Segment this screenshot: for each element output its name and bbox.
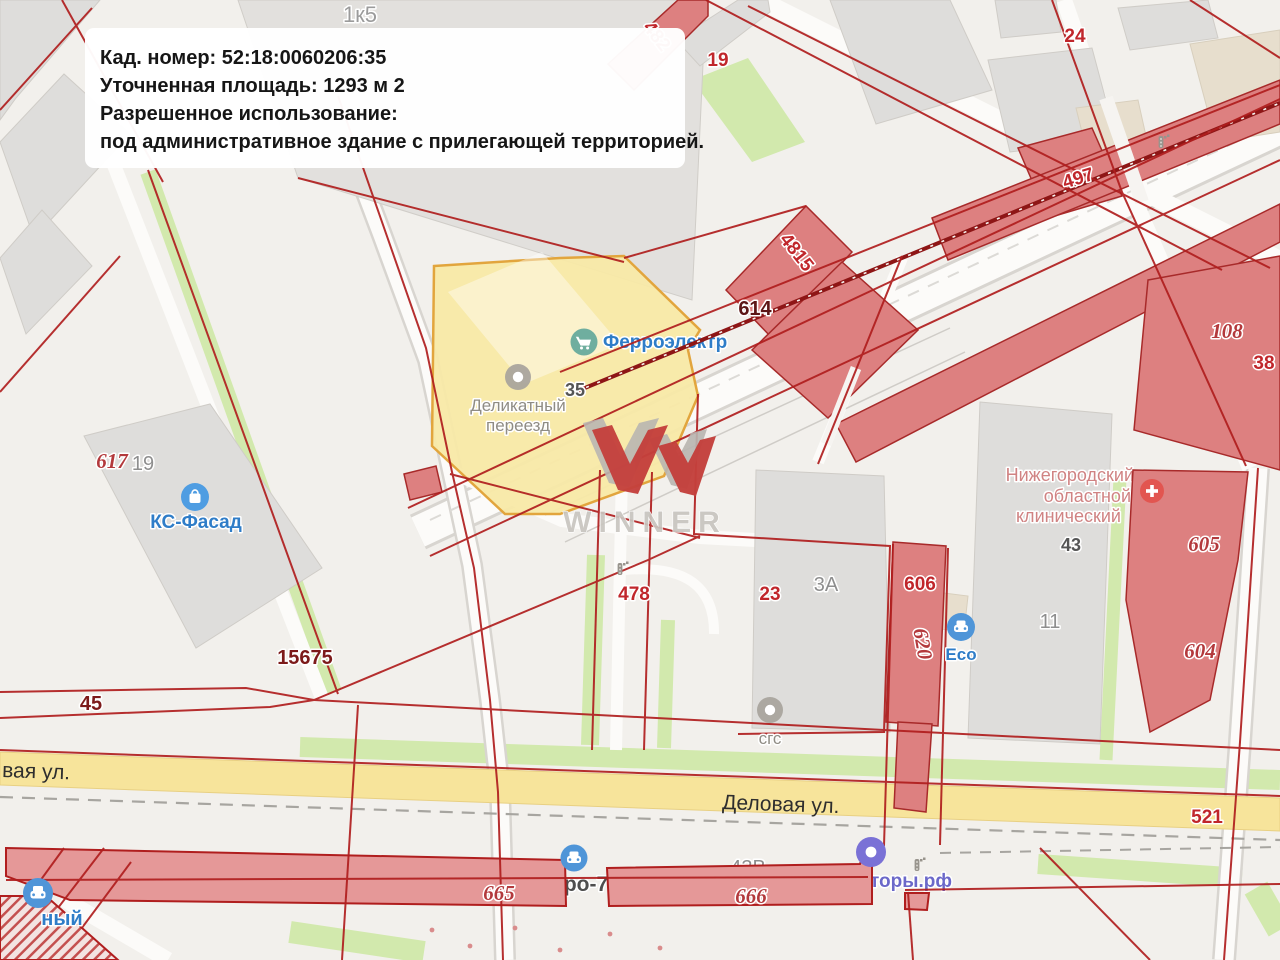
label-24: 24 [1064, 26, 1086, 47]
car-icon[interactable] [561, 845, 588, 872]
map-canvas[interactable]: Ферроэлектр Нижегородский областной клин… [0, 0, 1280, 960]
place-icon[interactable] [505, 364, 531, 390]
label-11: 11 [1040, 611, 1061, 633]
label-614: 614 [738, 298, 772, 320]
label-521: 521 [1191, 807, 1223, 828]
label-617: 617 [96, 449, 129, 473]
poi-label-delikatny-1[interactable]: Деликатный [470, 396, 566, 415]
street-label-delovaya-partial: вая ул. [2, 759, 71, 784]
info-line-area: Уточненная площадь: 1293 м 2 [100, 75, 405, 97]
poi-label-sgs[interactable]: сгс [759, 729, 782, 748]
hospital-cross-icon[interactable] [1140, 479, 1164, 503]
label-45: 45 [80, 693, 102, 715]
poi-label-hospital-3[interactable]: клинический [1016, 506, 1121, 526]
poi-label-eco[interactable]: Eco [945, 645, 976, 664]
poi-label-ro7: ро-7 [564, 873, 608, 896]
label-43: 43 [1061, 535, 1081, 555]
cart-icon[interactable] [571, 329, 598, 356]
place-icon[interactable] [757, 697, 783, 723]
label-478: 478 [618, 584, 650, 605]
label-606: 606 [904, 574, 936, 595]
info-line-permitted-use: Разрешенное использование: [100, 103, 398, 125]
label-3a: 3А [814, 574, 839, 596]
label-15675: 15675 [277, 647, 333, 669]
poi-label-bottom-left[interactable]: ный [41, 908, 82, 930]
car-wash-icon[interactable] [947, 613, 975, 641]
label-1k5: 1к5 [343, 2, 377, 27]
info-line-use-detail: под административное здание с прилегающе… [100, 131, 704, 153]
label-666: 666 [735, 884, 767, 908]
label-23: 23 [759, 584, 780, 605]
label-19-top: 19 [707, 50, 728, 71]
label-604: 604 [1184, 639, 1216, 663]
poi-label-delikatny-2[interactable]: переезд [486, 416, 550, 435]
label-35: 35 [565, 380, 585, 400]
info-line-cadastral-number: Кад. номер: 52:18:0060206:35 [100, 47, 386, 69]
poi-label-ks-fasad[interactable]: КС-Фасад [150, 512, 242, 533]
label-605: 605 [1188, 532, 1220, 556]
label-19-gray: 19 [132, 453, 154, 475]
watermark-text: WINNER [563, 506, 727, 539]
poi-label-hospital-2[interactable]: областной [1044, 486, 1131, 506]
poi-label-hospital-1[interactable]: Нижегородский [1006, 465, 1134, 485]
street-label-delovaya: Деловая ул. [722, 791, 840, 818]
map-screenshot: Ферроэлектр Нижегородский областной клин… [0, 0, 1280, 960]
building-11 [968, 402, 1112, 744]
info-box: Кад. номер: 52:18:0060206:35 Уточненная … [85, 28, 704, 168]
car-icon[interactable] [23, 878, 53, 908]
shopping-bag-icon[interactable] [181, 483, 209, 511]
dot-icon[interactable] [856, 837, 886, 867]
label-665: 665 [483, 881, 515, 905]
label-108: 108 [1211, 319, 1243, 343]
label-38: 38 [1253, 353, 1274, 374]
